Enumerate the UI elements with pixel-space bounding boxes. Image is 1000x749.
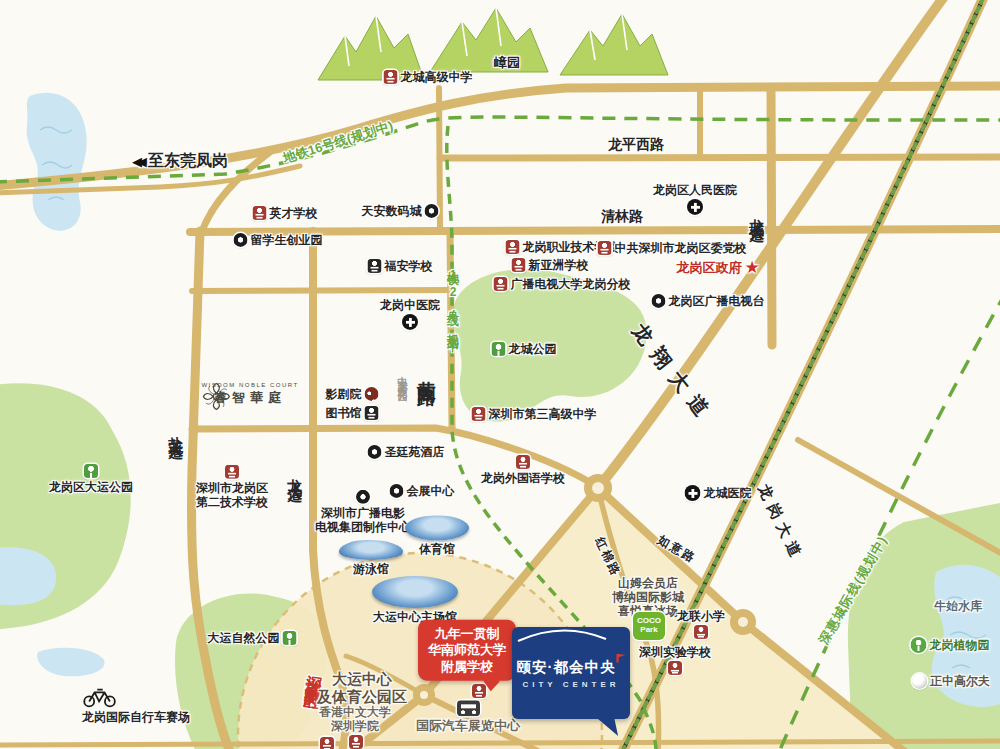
zhengzhong-golf-text: 正中高尔夫 — [930, 674, 990, 688]
gymnasium-text: 体育馆 — [419, 542, 455, 556]
park-icon — [283, 631, 297, 645]
school-red-icon — [472, 407, 486, 421]
park-icon — [492, 342, 506, 356]
school-red-icon — [598, 241, 612, 255]
theater-text: 影剧院 — [326, 387, 362, 401]
cuhk-shenzhen: 香港中文大学深圳学院 — [319, 705, 391, 733]
fuan-school-text: 福安学校 — [385, 259, 433, 273]
experimental-school: 深圳实验学校 — [639, 645, 711, 675]
nature-park-text: 大运自然公园 — [208, 631, 280, 645]
longxiang-avenue: 龙翔大道 — [627, 319, 719, 428]
overseas-student-park: 留学生创业园 — [234, 233, 323, 247]
longgang-avenue: 龙岗大道 — [755, 481, 808, 564]
school-callout-line3: 附属学校 — [428, 658, 506, 674]
new-asia-school-text: 新亚洲学校 — [529, 258, 589, 272]
botanical-garden: 龙岗植物园 — [911, 637, 990, 653]
park-circle-icon — [911, 637, 927, 653]
universiade-park-text: 龙岗区大运公园 — [49, 480, 133, 494]
library-text: 图书馆 — [326, 406, 362, 420]
school-red-icon — [225, 465, 239, 479]
school-red-icon — [506, 240, 520, 254]
second-tech-school-text: 深圳市龙岗区第二技术学校 — [196, 481, 268, 509]
round-black-icon — [356, 490, 370, 504]
overseas-student-park-text: 留学生创业园 — [251, 233, 323, 247]
school-red-icon — [516, 455, 530, 469]
tv-production-center: 深圳市广播电影电视集团制作中心 — [315, 490, 411, 534]
cross-icon — [402, 314, 418, 330]
swimming-hall: 游泳馆 — [339, 540, 403, 576]
longcheng-hospital-text: 龙城医院 — [704, 486, 752, 500]
round-black-icon — [425, 204, 439, 218]
longcheng-avenue-text: 龙城大道 — [748, 207, 766, 219]
hongmian-road-text: 红棉路 — [592, 535, 623, 579]
hnu-affiliated-school — [472, 684, 486, 698]
round-black-icon — [368, 445, 382, 459]
bike-icon — [118, 686, 154, 708]
longcheng-high-school-text: 龙城高级中学 — [401, 70, 473, 84]
star-icon: ★ — [744, 259, 759, 276]
auto-expo-center-text: 国际汽车展览中心 — [416, 718, 520, 733]
coco-icon: COCO Park — [633, 612, 665, 640]
school-callout-line2: 华南师范大学 — [428, 642, 506, 658]
flag-icon — [616, 654, 625, 663]
metro-line16-text: 地铁16号线(规划中) — [281, 118, 395, 166]
shenhui-intercity-line-text: 深惠城际线(规划中) — [816, 533, 891, 647]
longgang-tv-station-text: 龙岗区广播电视台 — [669, 294, 765, 308]
longcheng-avenue: 龙城大道 — [748, 207, 766, 219]
theater: 影剧院 — [326, 387, 379, 401]
people-hospital-text: 龙岗区人民医院 — [653, 183, 737, 197]
stad-md-icon — [405, 515, 469, 540]
yingcai-school: 英才学校 — [253, 206, 318, 220]
no3-high-school: 深圳市第三高级中学 — [472, 407, 597, 421]
foreign-language-school-text: 龙岗外国语学校 — [481, 471, 565, 485]
project-logo-title: 颐安·都会中央 — [517, 658, 626, 677]
niushi-reservoir: 牛始水库 — [934, 599, 982, 613]
experimental-school-text: 深圳实验学校 — [639, 645, 711, 659]
radio-tv-university: 广播电视大学龙岗分校 — [494, 277, 631, 291]
yanlong-avenue: 盐龙大道 — [167, 424, 185, 436]
party-school: 中共深圳市龙岗区委党校 — [598, 241, 747, 255]
radio-tv-university-text: 广播电视大学龙岗分校 — [511, 277, 631, 291]
tianan-cyber-park: 天安数码城 — [362, 204, 439, 218]
longcheng-hospital: 龙城医院 — [685, 485, 752, 501]
school-black-icon — [368, 259, 382, 273]
yingcai-school-text: 英才学校 — [270, 206, 318, 220]
ruyi-road: 如意路 — [655, 532, 698, 565]
longping-west-road: 龙平西路 — [608, 136, 664, 153]
new-asia-school: 新亚洲学校 — [512, 258, 589, 272]
cuhk-school-a — [320, 737, 334, 749]
school-red-icon — [253, 206, 267, 220]
theater-icon — [365, 387, 379, 401]
ruyi-road-text: 如意路 — [655, 532, 698, 565]
shengtingyuan-hotel: 圣廷苑酒店 — [368, 445, 445, 459]
niushi-reservoir-text: 牛始水库 — [934, 599, 982, 613]
school-black-icon — [365, 406, 379, 420]
school-red-icon — [349, 735, 363, 749]
fuan-school: 福安学校 — [368, 259, 433, 273]
sports-park-zone-text: 大运中心及体育公园区 — [317, 670, 407, 705]
huangge-road-text: 黄阁路 — [415, 366, 437, 375]
longcheng-park-text: 龙城公园 — [509, 342, 557, 356]
metro-line12: 地铁12号线(规划中) — [446, 262, 460, 351]
shengtingyuan-hotel-text: 圣廷苑酒店 — [385, 445, 445, 459]
longcheng-high-school: 龙城高级中学 — [384, 70, 473, 84]
tv-production-center-text: 深圳市广播电影电视集团制作中心 — [315, 506, 411, 534]
school-red-icon — [668, 661, 682, 675]
round-black-icon — [234, 233, 248, 247]
longfei-avenue-text: 龙飞大道 — [286, 467, 304, 479]
coco-park: COCO Park — [633, 612, 665, 640]
no3-high-school-text: 深圳市第三高级中学 — [489, 407, 597, 421]
universiade-main-stadium: 大运中心主场馆 — [372, 576, 458, 624]
tcm-hospital-text: 龙岗中医院 — [380, 298, 440, 312]
cuhk-shenzhen-text: 香港中文大学深圳学院 — [319, 705, 391, 733]
school-red-icon — [512, 258, 526, 272]
foreign-language-school: 龙岗外国语学校 — [481, 455, 565, 485]
people-hospital: 龙岗区人民医院 — [653, 183, 737, 215]
map-canvas: 龙城高级中学嶂园◀◀至东莞凤岗地铁16号线(规划中)英才学校留学生创业园天安数码… — [0, 0, 1000, 749]
school-callout-line1: 九年一贯制 — [428, 626, 506, 642]
longcheng-park: 龙城公园 — [492, 342, 557, 356]
swimming-hall-text: 游泳馆 — [353, 562, 389, 576]
to-dongguan-fenggang-text: 至东莞凤岗 — [148, 152, 228, 171]
gymnasium: 体育馆 — [405, 515, 469, 556]
tianan-cyber-park-text: 天安数码城 — [362, 204, 422, 218]
project-name: 颐安·都会中央 — [517, 658, 616, 677]
round-black-icon — [652, 294, 666, 308]
central-business-garden-text: 中央商务花园 — [396, 368, 408, 386]
to-dongguan-fenggang: ◀◀至东莞凤岗 — [132, 152, 228, 171]
qinglin-road-text: 清林路 — [601, 208, 643, 225]
universiade-park: 龙岗区大运公园 — [49, 464, 133, 494]
tcm-hospital: 龙岗中医院 — [380, 298, 440, 330]
car-icon — [457, 700, 480, 716]
longfei-avenue: 龙飞大道 — [286, 467, 304, 479]
cuhk-school-b — [349, 735, 363, 749]
golf-icon — [912, 674, 927, 689]
stad-lg-icon — [372, 576, 458, 608]
longxiang-avenue-text: 龙翔大道 — [627, 319, 719, 428]
stad-sm-icon — [339, 540, 403, 560]
school-callout: 九年一贯制 华南师范大学 附属学校 — [418, 620, 516, 681]
central-business-garden: 中央商务花园 — [396, 368, 408, 386]
zhangyuan-text: 嶂园 — [494, 55, 520, 70]
longgang-avenue-text: 龙岗大道 — [755, 481, 808, 564]
longgang-tv-station: 龙岗区广播电视台 — [652, 294, 765, 308]
cross-icon — [687, 199, 703, 215]
velodrome: 龙岗国际自行车赛场 — [82, 686, 190, 724]
longgang-government: 龙岗区政府★ — [676, 259, 759, 276]
huangge-road: 黄阁路 — [415, 366, 437, 375]
metro-line12-text: 地铁12号线(规划中) — [446, 262, 460, 351]
nature-park: 大运自然公园 — [208, 631, 297, 645]
longgang-government-text: 龙岗区政府 — [676, 259, 741, 274]
shenhui-intercity-line: 深惠城际线(规划中) — [816, 533, 891, 647]
longping-west-road-text: 龙平西路 — [608, 136, 664, 153]
longlian-primary-school-text: 龙联小学 — [677, 609, 725, 623]
qinglin-road: 清林路 — [601, 208, 643, 225]
zhengzhong-golf: 正中高尔夫 — [912, 674, 990, 689]
auto-expo-center: 国际汽车展览中心 — [416, 700, 520, 733]
library: 图书馆 — [326, 406, 379, 420]
metro-line16: 地铁16号线(规划中) — [281, 118, 395, 166]
cross-icon — [685, 485, 701, 501]
hongmian-road: 红棉路 — [592, 535, 623, 579]
project-logo: 颐安·都会中央 CITY CENTER — [512, 627, 630, 719]
school-red-icon — [694, 625, 708, 639]
school-red-icon — [472, 684, 486, 698]
zhangyuan: 嶂园 — [494, 55, 520, 70]
school-red-icon — [384, 70, 398, 84]
party-school-text: 中共深圳市龙岗区委党校 — [615, 241, 747, 255]
yanlong-avenue-text: 盐龙大道 — [167, 424, 185, 436]
botanical-garden-text: 龙岗植物园 — [930, 638, 990, 652]
project-subtitle: CITY CENTER — [522, 680, 619, 689]
sports-park-zone: 大运中心及体育公园区 — [317, 670, 407, 705]
velodrome-text: 龙岗国际自行车赛场 — [82, 710, 190, 724]
school-red-icon — [320, 737, 334, 749]
convention-center-text: 会展中心 — [407, 484, 455, 498]
park-icon — [84, 464, 98, 478]
swoosh-icon — [512, 627, 612, 645]
second-tech-school: 深圳市龙岗区第二技术学校 — [196, 465, 268, 509]
school-red-icon — [494, 277, 508, 291]
arrows-icon: ◀◀ — [132, 155, 142, 168]
longlian-primary-school: 龙联小学 — [677, 609, 725, 639]
